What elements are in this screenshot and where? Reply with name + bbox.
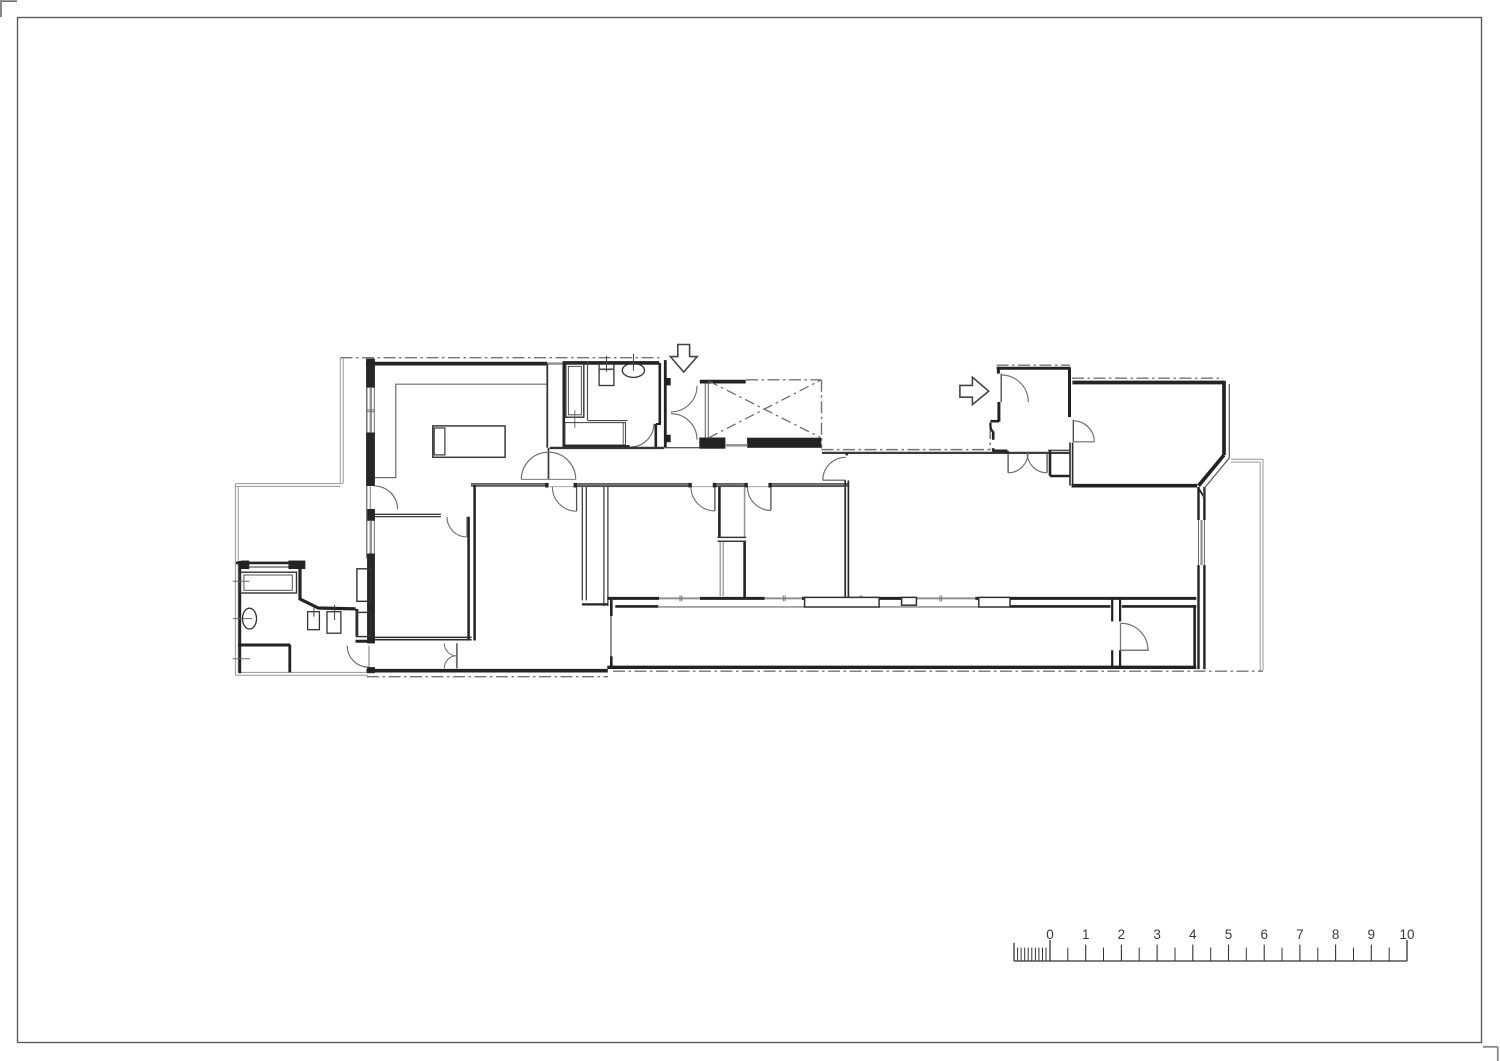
svg-text:8: 8	[1332, 927, 1340, 942]
svg-text:1: 1	[1082, 927, 1090, 942]
svg-text:6: 6	[1260, 927, 1268, 942]
svg-text:7: 7	[1296, 927, 1304, 942]
svg-text:5: 5	[1225, 927, 1233, 942]
svg-text:2: 2	[1118, 927, 1126, 942]
svg-text:10: 10	[1399, 927, 1414, 942]
svg-text:9: 9	[1368, 927, 1376, 942]
svg-text:3: 3	[1153, 927, 1161, 942]
svg-text:0: 0	[1046, 927, 1054, 942]
svg-text:4: 4	[1189, 927, 1197, 942]
